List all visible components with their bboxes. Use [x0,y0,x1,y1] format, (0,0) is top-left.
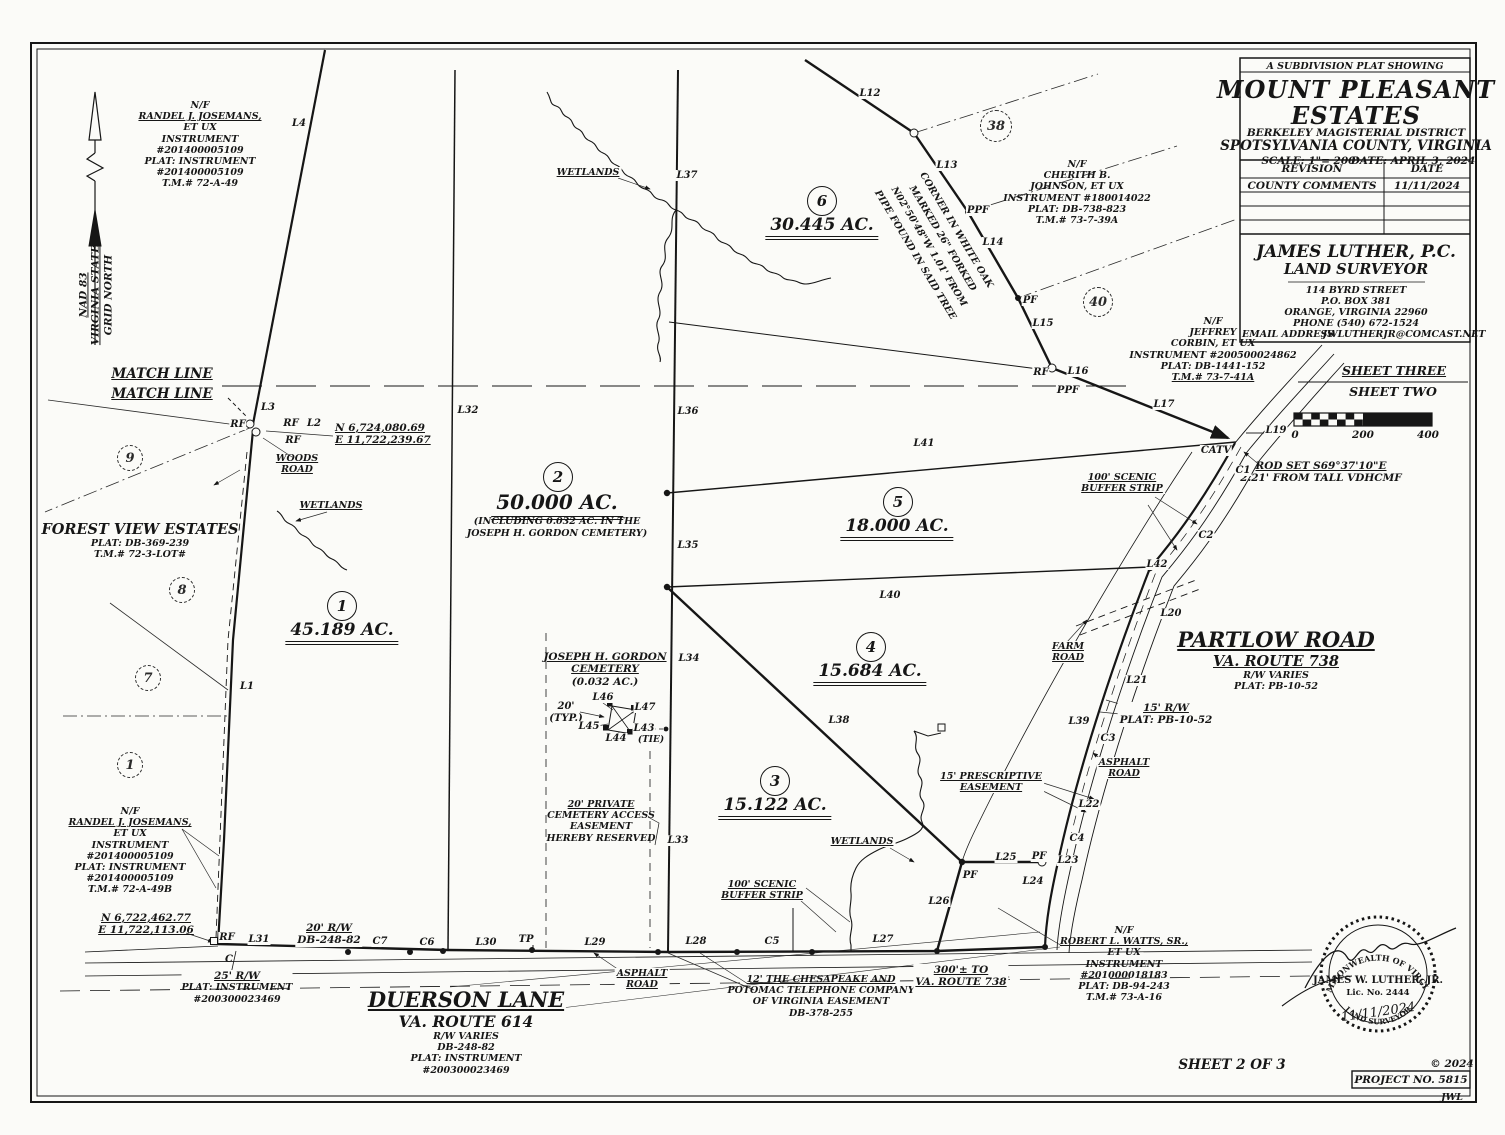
graphic-scale-bar [1294,413,1432,426]
adjoining-lot-7: 7 [135,665,161,691]
line-L33: L33 [667,835,690,846]
title-county: SPOTSYLVANIA COUNTY, VIRGINIA [1220,139,1492,155]
line-L38: L38 [828,715,851,726]
line-L28: L28 [685,936,708,947]
cemetery-acreage: (0.032 AC.) [543,676,666,688]
wetlands-label-south: WETLANDS [829,836,896,847]
line-L43: L43 [633,723,656,734]
road-name: PARTLOW ROAD [1177,628,1374,653]
line-L41: L41 [913,438,936,449]
tax-map: T.M.# 72-3-LOT# [41,549,238,560]
road-name: ASPHALT [1097,757,1152,768]
line-L37: L37 [676,170,699,181]
line-L34: L34 [678,653,701,664]
plat-no: #200300023469 [366,1065,566,1076]
marker-RF-3: RF [284,435,301,446]
surveyor-address2: P.O. BOX 381 [1321,296,1391,307]
line-L14: L14 [982,237,1005,248]
asphalt-road-label-east: ASPHALT ROAD [1097,757,1152,779]
owner-name2: JOHNSON, ET UX [1003,181,1151,192]
line-L31: L31 [248,934,271,945]
surveyor-address3: ORANGE, VIRGINIA 22960 [1284,307,1427,318]
woods-road-label: WOODS ROAD [276,453,318,475]
line-L1: L1 [239,681,255,692]
nf: N/F [138,100,261,111]
line1: 20' R/W [295,922,362,934]
forest-view-estates: FOREST VIEW ESTATES PLAT: DB-369-239 T.M… [41,521,238,561]
match-line-top: MATCH LINE [109,367,214,383]
adjoining-lot-8: 8 [169,577,195,603]
curve-C1: C1 [1235,465,1252,476]
line-L3: L3 [260,402,276,413]
parcel-2-note2: JOSEPH H. GORDON CEMETERY) [467,528,647,539]
tax-map: T.M.# 72-A-49B [68,884,191,895]
line-L29: L29 [584,937,607,948]
line-L17: L17 [1153,399,1176,410]
instrument: INSTRUMENT [138,134,261,145]
line-L2: L2 [306,418,322,429]
marker-RF-4: RF [1032,367,1049,378]
line2: EASEMENT [938,782,1044,793]
prescriptive-easement-note: 15' PRESCRIPTIVE EASEMENT [938,771,1044,793]
marker-TP: TP [518,934,535,945]
line-L40: L40 [879,590,902,601]
nf: N/F [1129,316,1296,327]
adjoining-lot-1: 1 [117,752,143,778]
line-L46: L46 [592,692,615,703]
line-L43-tie: (TIE) [637,735,665,745]
curve-C4: C4 [1069,833,1086,844]
rw20-note: 20' R/W DB-248-82 [295,922,362,947]
rw-varies: R/W VARIES [366,1031,566,1042]
db-ref: DB-248-82 [366,1042,566,1053]
north-corner-coordinates: N 6,724,080.69 E 11,722,239.67 [335,422,431,447]
cemetery-label: JOSEPH H. GORDON CEMETERY (0.032 AC.) [543,651,666,688]
parcel-5-circle: 5 [883,487,913,517]
cemetery-easement-note: 20' PRIVATE CEMETERY ACCESS EASEMENT HER… [547,799,656,844]
parcel-1-acreage: 45.189 AC. [285,620,398,645]
seal-name: JAMES W. LUTHER, JR. [1312,975,1443,986]
rw15-note: 15' R/W PLAT: PB-10-52 [1118,702,1215,727]
line-L44: L44 [605,733,628,744]
wetlands-label-west: WETLANDS [298,500,365,511]
plat-no: #201400005109 [68,873,191,884]
owner-josemans-south: N/F RANDEL J. JOSEMANS, ET UX INSTRUMENT… [68,806,191,896]
rw25-note: 25' R/W PLAT: INSTRUMENT #200300023469 [182,970,293,1005]
curve-C7: C7 [372,936,389,947]
instrument-no: #201400005109 [138,145,261,156]
line-L4: L4 [291,118,307,129]
scenic-buffer-note-south: 100' SCENIC BUFFER STRIP [719,879,805,901]
surveyor-title: LAND SURVEYOR [1284,261,1428,278]
plat: PLAT: INSTRUMENT [138,156,261,167]
road-name: WOODS [276,453,318,464]
owner-name: RANDEL J. JOSEMANS, [68,817,191,828]
owner-name2: CORBIN, ET UX [1129,338,1296,349]
road-name: DUERSON LANE [366,988,566,1013]
sheet-divider-top: SHEET THREE [1342,364,1446,379]
line-L36: L36 [677,406,700,417]
tax-map: T.M.# 73-A-16 [1060,992,1188,1003]
instrument-no: #201000018183 [1060,970,1188,981]
line-L39: L39 [1068,716,1091,727]
line1: 15' R/W [1118,702,1215,714]
route-number: VA. ROUTE 738 [1177,653,1374,670]
line2: VA. ROUTE 738 [913,976,1008,988]
owner-name: RANDEL J. JOSEMANS, [138,111,261,122]
owner-josemans-north: N/F RANDEL J. JOSEMANS, ET UX INSTRUMENT… [138,100,261,190]
curve-C2: C2 [1198,530,1215,541]
parcel-2-note1: (INCLUDING 0.032 AC. IN THE [474,516,641,527]
line-L45: L45 [578,721,601,732]
parcel-2-circle: 2 [543,462,573,492]
cemetery-name2: CEMETERY [543,663,666,675]
plat: PLAT: DB-1441-152 [1129,361,1296,372]
scale-tick-400: 400 [1417,429,1439,441]
instrument: INSTRUMENT #200500024862 [1129,350,1296,361]
revision-row-label: COUNTY COMMENTS [1248,180,1377,192]
line-L25: L25 [995,852,1018,863]
marker-PPF-2: PPF [1056,385,1080,396]
route-number: VA. ROUTE 614 [366,1013,566,1031]
et-ux: ET UX [138,122,261,133]
line-L23: L23 [1057,855,1080,866]
line-L32: L32 [457,405,480,416]
marker-PF-2: PF [962,870,979,881]
centerline-symbol: C [225,954,233,965]
line-L22: L22 [1078,799,1101,810]
line-L15: L15 [1032,318,1055,329]
line1: 100' SCENIC [719,879,805,890]
line1: 25' R/W [182,970,293,982]
road-name2: ROAD [615,979,670,990]
road-name2: ROAD [1050,652,1086,663]
surveyor-address1: 114 BYRD STREET [1306,285,1407,296]
parcel-4-acreage: 15.684 AC. [813,661,926,686]
asphalt-road-label-south: ASPHALT ROAD [615,968,670,990]
farm-road-label: FARM ROAD [1050,641,1086,663]
marker-RF-2: RF [282,418,299,429]
parcel-6-circle: 6 [807,186,837,216]
copyright: © 2024 [1430,1058,1473,1070]
line4: HEREBY RESERVED [547,833,656,844]
line-L16: L16 [1067,366,1090,377]
line1: 15' PRESCRIPTIVE [938,771,1044,782]
et-ux: ET UX [1060,947,1188,958]
line-L42: L42 [1146,559,1169,570]
line3: #200300023469 [182,994,293,1005]
owner-johnson: N/F CHERITH B. JOHNSON, ET UX INSTRUMENT… [1003,159,1151,226]
parcel-3-circle: 3 [760,766,790,796]
marker-PF-1: PF [1022,295,1039,306]
line2: POTOMAC TELEPHONE COMPANY [727,985,914,996]
et-ux: ET UX [68,828,191,839]
instrument-no: #201400005109 [68,851,191,862]
line1: 20' PRIVATE [547,799,656,810]
northing: N 6,722,462.77 [98,912,194,924]
line1: 12' THE CHESAPEAKE AND [727,974,914,985]
plat: PLAT: DB-369-239 [41,538,238,549]
instrument: INSTRUMENT [1060,959,1188,970]
road-name2: ROAD [1097,768,1152,779]
plat-no: #201400005109 [138,167,261,178]
drafter-initials: JWL [1441,1092,1463,1103]
instrument: INSTRUMENT [68,840,191,851]
plat: PLAT: INSTRUMENT [366,1053,566,1064]
line3: OF VIRGINIA EASEMENT [727,996,914,1007]
title-kicker: A SUBDIVISION PLAT SHOWING [1267,61,1444,72]
state-grid-label: VIRGINIA STATE [90,245,102,345]
line2: PLAT: INSTRUMENT [182,982,293,993]
plat: PLAT: DB-94-243 [1060,981,1188,992]
line-L12: L12 [859,88,882,99]
sheet-divider-bottom: SHEET TWO [1349,385,1437,400]
line1: 300'± TO [913,964,1008,976]
plat-sheet: COMMONWEALTH OF VIRGINIA LAND SURVEYOR J… [0,0,1505,1135]
parcel-5-acreage: 18.000 AC. [840,516,953,541]
marker-PF-3: PF [1031,851,1048,862]
line2: BUFFER STRIP [1079,483,1165,494]
adjoining-lot-9: 9 [117,445,143,471]
road-name: ASPHALT [615,968,670,979]
owner-watts: N/F ROBERT L. WATTS, SR., ET UX INSTRUME… [1060,925,1188,1003]
grid-north-label: GRID NORTH [102,245,114,345]
subdivision-name: FOREST VIEW ESTATES [41,521,238,538]
nf: N/F [68,806,191,817]
curve-C5: C5 [764,936,781,947]
distance-to-route-738: 300'± TO VA. ROUTE 738 [913,964,1008,989]
line2: PLAT: PB-10-52 [1118,714,1215,726]
line3: EASEMENT [547,821,656,832]
line-L27: L27 [872,934,895,945]
owner-name: JEFFREY [1129,327,1296,338]
owner-name: CHERITH B. [1003,170,1151,181]
plat: PLAT: INSTRUMENT [68,862,191,873]
plat: PLAT: DB-738-823 [1003,204,1151,215]
adjoining-lot-38: 38 [980,110,1012,142]
road-name: FARM [1050,641,1086,652]
marker-CATV: CATV [1200,445,1232,456]
cemetery-name: JOSEPH H. GORDON [543,651,666,663]
line-L26: L26 [928,896,951,907]
line4: DB-378-255 [727,1008,914,1019]
surveyor-email: JWLUTHERJR@COMCAST.NET [1323,329,1486,340]
south-corner-coordinates: N 6,722,462.77 E 11,722,113.06 [98,912,194,937]
tax-map: T.M.# 72-A-49 [138,178,261,189]
surveyor-name: JAMES LUTHER, P.C. [1256,242,1456,262]
line-L21: L21 [1126,675,1149,686]
line-L19: L19 [1265,425,1288,436]
line1: ROD SET S69°37'10"E [1240,460,1401,472]
surveyor-phone: PHONE (540) 672-1524 [1293,318,1419,329]
owner-corbin: N/F JEFFREY CORBIN, ET UX INSTRUMENT #20… [1129,316,1296,383]
date-header: DATE [1411,163,1444,175]
marker-PPF-1: PPF [966,205,990,216]
revision-row-date: 11/11/2024 [1394,180,1460,192]
northing: N 6,724,080.69 [335,422,431,434]
line2: 2.21' FROM TALL VDHCMF [1240,472,1401,484]
owner-name: ROBERT L. WATTS, SR., [1060,936,1188,947]
line1: 100' SCENIC [1079,472,1165,483]
revision-header: REVISION [1281,163,1342,175]
line-L24: L24 [1022,876,1045,887]
marker-RF-1: RF [229,419,246,430]
line-L35: L35 [677,540,700,551]
marker-RF-5: RF [218,932,235,943]
phone-easement-note: 12' THE CHESAPEAKE AND POTOMAC TELEPHONE… [727,974,914,1019]
line-L13: L13 [936,160,959,171]
nf: N/F [1003,159,1151,170]
scale-tick-200: 200 [1352,429,1374,441]
line2: BUFFER STRIP [719,890,805,901]
parcel-3-acreage: 15.122 AC. [718,795,831,820]
seal-license: Lic. No. 2444 [1346,988,1409,998]
line-L30: L30 [475,937,498,948]
nf: N/F [1060,925,1188,936]
north-arrow-label: NAD 83 VIRGINIA STATE GRID NORTH [77,245,114,345]
parcel-4-circle: 4 [856,632,886,662]
line-L20: L20 [1160,608,1183,619]
duerson-lane-block: DUERSON LANE VA. ROUTE 614 R/W VARIES DB… [366,988,566,1076]
cemetery-dim: 20' [557,701,576,712]
line2: CEMETERY ACCESS [547,810,656,821]
tax-map: T.M.# 73-7-41A [1129,372,1296,383]
sheet-number: SHEET 2 OF 3 [1178,1058,1285,1074]
easting: E 11,722,113.06 [98,924,194,936]
scenic-buffer-note-east: 100' SCENIC BUFFER STRIP [1079,472,1165,494]
wetlands-label-north: WETLANDS [555,167,622,178]
line-L47: L47 [634,702,657,713]
match-line-bottom: MATCH LINE [109,387,214,403]
curve-C3: C3 [1100,733,1117,744]
road-name2: ROAD [276,464,318,475]
easting: E 11,722,239.67 [335,434,431,446]
rw-varies: R/W VARIES [1177,670,1374,681]
parcel-6-acreage: 30.445 AC. [765,215,878,240]
adjoining-lot-40: 40 [1083,287,1113,317]
plat-ref: PLAT: PB-10-52 [1177,681,1374,692]
instrument: INSTRUMENT #180014022 [1003,193,1151,204]
nad83-label: NAD 83 [77,245,89,345]
curve-C6: C6 [419,937,436,948]
project-number: PROJECT NO. 5815 [1354,1074,1467,1086]
scale-tick-0: 0 [1291,429,1298,441]
rod-set-note: ROD SET S69°37'10"E 2.21' FROM TALL VDHC… [1240,460,1401,485]
partlow-road-block: PARTLOW ROAD VA. ROUTE 738 R/W VARIES PL… [1177,628,1374,692]
line2: DB-248-82 [295,934,362,946]
parcel-1-circle: 1 [327,591,357,621]
tax-map: T.M.# 73-7-39A [1003,215,1151,226]
